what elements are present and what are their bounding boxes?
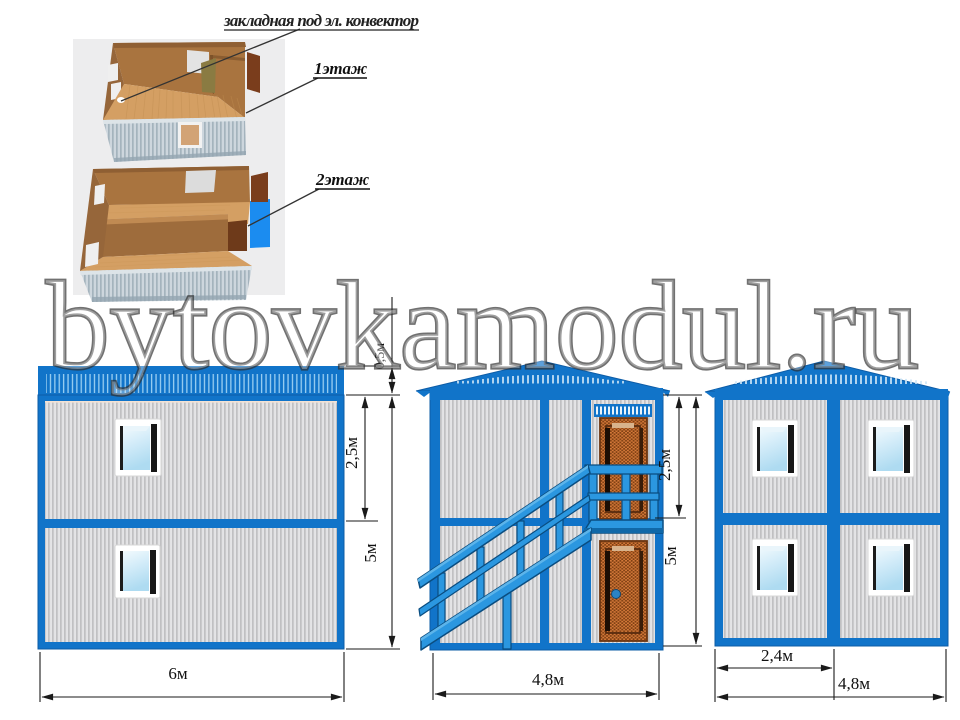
svg-text:bytovkamodul.ru: bytovkamodul.ru <box>46 257 919 396</box>
svg-text:1этаж: 1этаж <box>314 59 367 78</box>
svg-text:6м: 6м <box>168 664 188 683</box>
svg-text:2,5м: 2,5м <box>655 449 674 481</box>
svg-text:5м: 5м <box>361 543 380 563</box>
svg-text:4,8м: 4,8м <box>838 674 870 693</box>
svg-text:2,4м: 2,4м <box>761 646 793 665</box>
svg-text:4,8м: 4,8м <box>532 670 564 689</box>
svg-text:5м: 5м <box>661 546 680 566</box>
svg-text:закладная под эл. конвектор: закладная под эл. конвектор <box>223 11 419 30</box>
svg-text:2этаж: 2этаж <box>315 170 369 189</box>
svg-text:2,5м: 2,5м <box>342 437 361 469</box>
